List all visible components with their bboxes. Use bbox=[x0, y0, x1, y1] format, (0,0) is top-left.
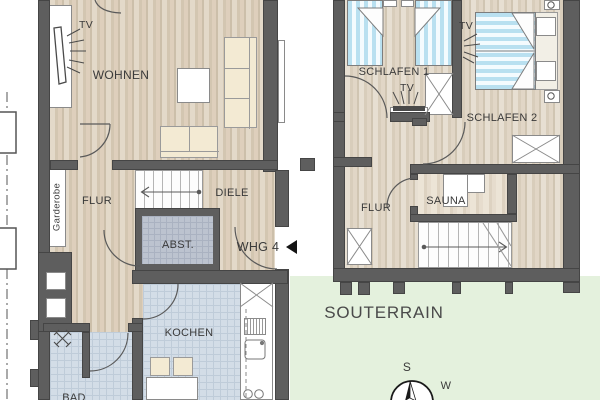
compass-icon bbox=[391, 381, 433, 400]
room-label-schlafen2: SCHLAFEN 2 bbox=[467, 112, 538, 124]
room-label-bad: BAD bbox=[62, 392, 86, 400]
lamp-icon bbox=[548, 2, 554, 99]
tv-signal-icon bbox=[463, 34, 480, 63]
floorplan: TV WOHNEN Garderobe FLUR DIELE ABST. WHG… bbox=[0, 0, 600, 400]
room-label-diele: DIELE bbox=[215, 187, 248, 199]
room-label-flur-right: FLUR bbox=[361, 202, 391, 214]
tv-icon bbox=[54, 27, 86, 84]
room-label-flur-left: FLUR bbox=[82, 195, 112, 207]
property-line bbox=[0, 92, 16, 400]
unit-label-whg4: WHG 4 bbox=[237, 240, 279, 254]
room-label-tv-schlafen1: TV bbox=[400, 82, 414, 94]
room-label-kochen: KOCHEN bbox=[165, 327, 214, 339]
wardrobe-x-icon bbox=[240, 73, 560, 307]
compass-west-label: W bbox=[441, 380, 452, 392]
room-label-wohnen: WOHNEN bbox=[93, 68, 149, 82]
bath-vent-icon bbox=[54, 330, 71, 347]
stove-icon bbox=[244, 390, 264, 399]
room-label-tv-schlafen2: TV bbox=[459, 20, 473, 32]
compass-south-label: S bbox=[403, 360, 411, 374]
room-label-garderobe: Garderobe bbox=[52, 183, 63, 231]
room-label-sauna: SAUNA bbox=[426, 195, 465, 207]
room-label-schlafen1: SCHLAFEN 1 bbox=[359, 66, 430, 78]
room-label-abstellraum: ABST. bbox=[162, 239, 194, 251]
sink-icon bbox=[245, 340, 265, 359]
level-label-souterrain: SOUTERRAIN bbox=[324, 303, 443, 323]
entrance-arrow-icon bbox=[286, 240, 297, 254]
room-label-tv-wohnen: TV bbox=[79, 19, 93, 31]
